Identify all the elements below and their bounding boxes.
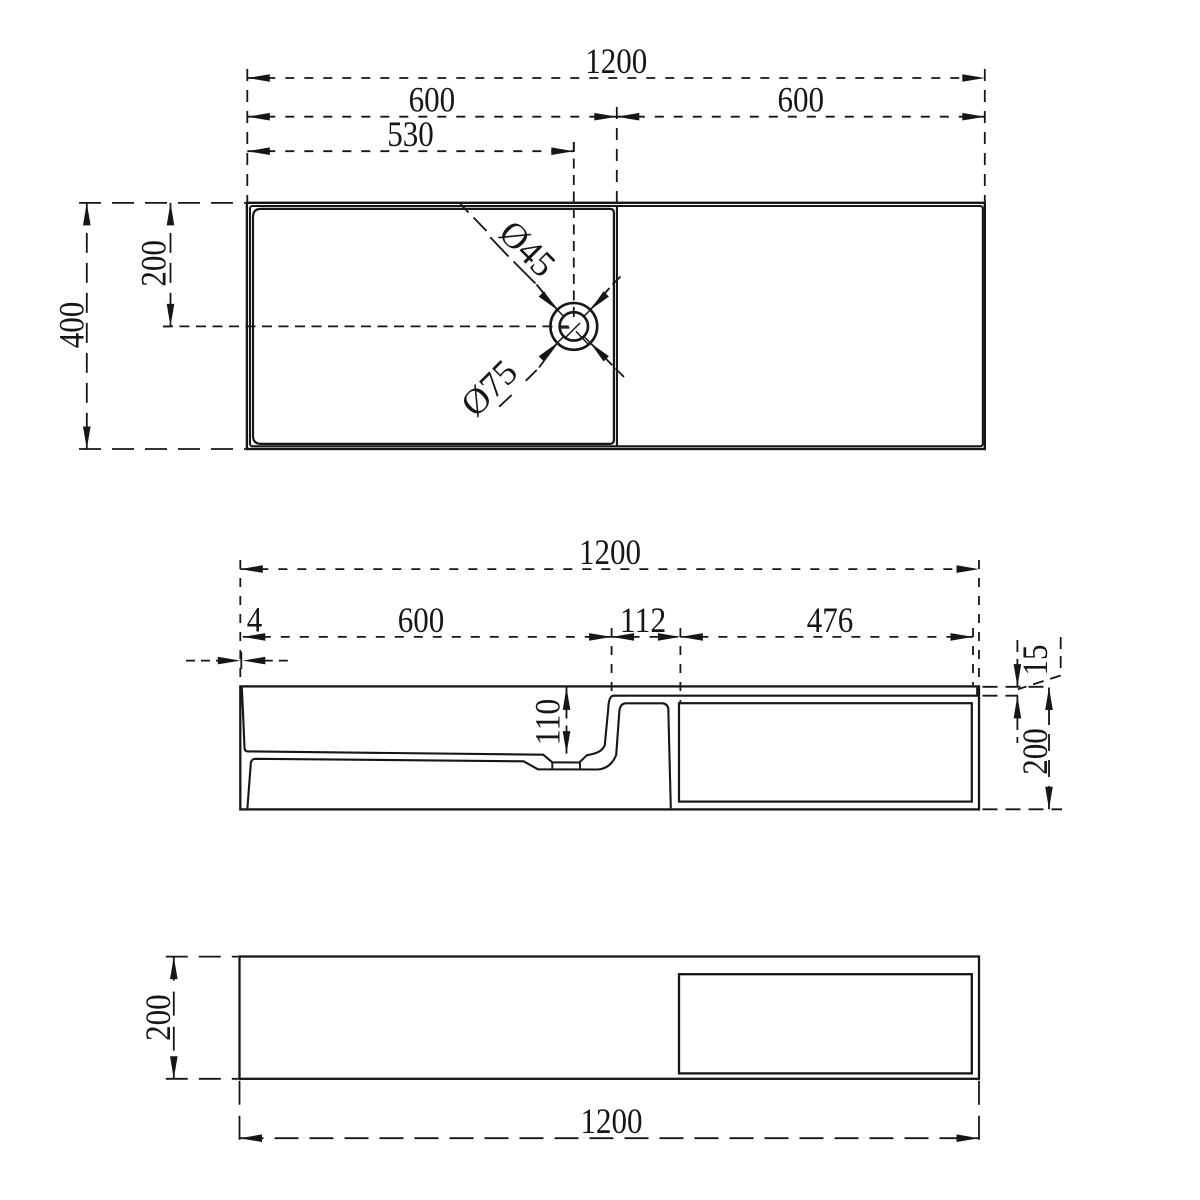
svg-text:600: 600 (777, 80, 824, 120)
svg-text:112: 112 (620, 600, 667, 640)
svg-text:1200: 1200 (579, 532, 641, 572)
svg-text:15: 15 (1015, 645, 1055, 676)
svg-text:1200: 1200 (585, 41, 647, 81)
svg-text:530: 530 (387, 114, 434, 154)
svg-text:400: 400 (52, 302, 92, 349)
svg-text:200: 200 (1015, 728, 1055, 775)
svg-text:110: 110 (528, 699, 568, 746)
svg-text:200: 200 (133, 240, 173, 287)
svg-text:1200: 1200 (581, 1101, 643, 1141)
svg-text:4: 4 (247, 600, 263, 640)
svg-text:200: 200 (138, 994, 178, 1041)
svg-text:600: 600 (398, 600, 445, 640)
svg-text:476: 476 (807, 600, 854, 640)
